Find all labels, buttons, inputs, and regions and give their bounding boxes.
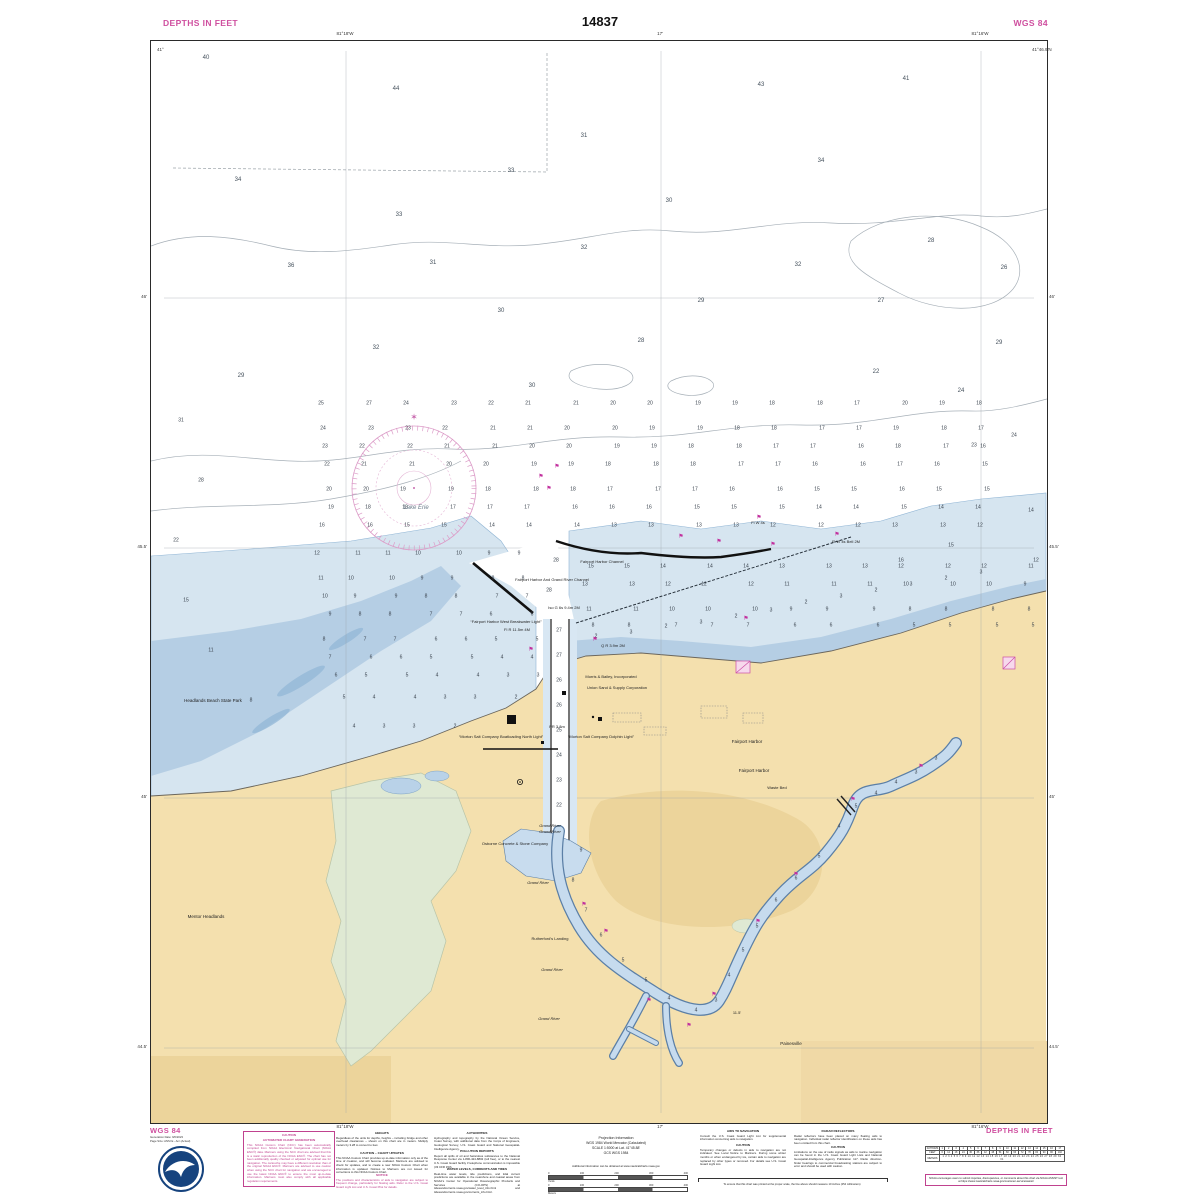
depth-sounding: 10 [950,583,956,588]
depth-sounding: 14 [743,565,749,570]
depth-sounding: 17 [810,445,816,450]
depth-sounding: 11 [318,577,323,582]
map-label: Morris & Bailey, Incorporated [585,675,636,679]
graticule-label: 41°46.9'N [1032,47,1052,52]
depth-sounding: 27 [878,298,885,304]
depth-sounding: 3 [507,674,510,679]
assist-note: NOAA encourages users to submit inquirie… [925,1174,1067,1186]
buoy-icon: ⚑ [686,1023,691,1029]
depth-sounding: 17 [487,506,493,511]
depth-sounding: 23 [451,402,457,407]
depth-sounding: 16 [898,559,904,564]
depth-sounding: 3 [700,621,703,626]
depth-sounding: 3 [840,595,843,600]
buoy-icon: ⚑ [850,797,855,803]
depth-sounding: 20 [363,488,369,493]
depth-sounding: 11 [355,552,360,557]
depth-sounding: 6 [775,899,778,904]
depth-sounding: 24 [320,427,326,432]
depth-sounding: 8 [250,699,253,704]
depth-sounding: 6 [465,638,468,643]
depth-sounding: 23 [971,444,977,449]
buoy-icon: ⚑ [756,515,761,521]
buoy-icon: ⚑ [603,929,608,935]
map-label: Grand River [527,881,549,885]
depth-sounding: 12 [818,524,824,529]
depth-sounding: 8 [1028,608,1031,613]
wgs84-top: WGS 84 [1013,18,1048,28]
depth-sounding: 8 [945,608,948,613]
depth-sounding: 6 [490,613,493,618]
depth-sounding: 12 [945,565,951,570]
graticule-label: 44.5' [137,1044,147,1049]
depth-sounding: 20 [610,402,616,407]
depth-sounding: 2 [945,577,948,582]
depth-sounding: 31 [430,260,437,266]
projection-info: Projection InformationWGS 1984 World Mer… [540,1136,692,1156]
buoy-icon: ⚑ [528,647,533,653]
depth-sounding: 10 [389,577,395,582]
map-label: Grand River [539,830,561,834]
map-label: Q R 3.9m 2M [601,644,625,648]
depth-sounding: 44 [393,86,400,92]
depth-sounding: 19 [568,463,574,468]
depth-sounding: 17 [943,445,949,450]
map-label: Grand River [538,1017,560,1021]
depth-sounding: 18 [941,427,947,432]
map-label: Waste Bed [767,786,786,790]
depth-sounding: 20 [612,427,618,432]
depth-sounding: 15 [694,506,700,511]
map-label: Fairport Harbor And Grand River Channel [515,578,589,582]
depth-sounding: 11 [208,649,213,654]
graticule-label: 45' [141,794,147,799]
depth-sounding: 24 [403,402,409,407]
depth-sounding: 7 [675,624,678,629]
depth-sounding: 13 [940,524,946,529]
depth-sounding: 16 [812,463,818,468]
map-label: Painesville [780,1042,802,1047]
depth-sounding: 11 [867,583,872,588]
depth-sounding: 18 [976,402,982,407]
depth-sounding: 40 [203,55,210,61]
depth-sounding: 19 [732,402,738,407]
depth-sounding: 21 [490,427,496,432]
map-label: Lake Erie [403,505,428,511]
depth-sounding: 13 [892,524,898,529]
depth-sounding: 6 [400,656,403,661]
depth-sounding: 3 [537,674,540,679]
depth-sounding: 2 [454,725,457,730]
depth-sounding: 20 [446,463,452,468]
depth-sounding: 12 [898,565,904,570]
note-notice: NOTICEThe positions and characteristics … [336,1174,428,1190]
depth-sounding: 4 [353,725,356,730]
depth-sounding: 14 [816,506,822,511]
depth-sounding: 32 [795,262,802,268]
graticule-label: 46' [1049,294,1055,299]
depth-sounding: 4 [895,781,898,786]
depth-sounding: 20 [326,488,332,493]
map-label: Fl W 4s [751,521,765,525]
depth-sounding: 4 [875,792,878,797]
wgs84-bottom: WGS 84 [150,1126,181,1135]
depth-sounding: 11 [586,608,591,613]
depth-sounding: 11 [784,583,789,588]
depth-sounding: 15 [731,506,737,511]
depth-sounding: 12 [1033,559,1039,564]
depth-sounding: 29 [698,298,705,304]
depth-sounding: 27 [366,402,372,407]
map-label: Fairport Harbor [739,769,770,774]
buoy-icon: ⚑ [711,992,716,998]
map-label: Grand River [541,968,563,972]
map-label: Fl W 4s Bell 2M [832,540,860,544]
depth-sounding: 3 [770,609,773,614]
depth-sounding: 5 [343,696,346,701]
note-water-levels: WATER LEVELS, CURRENTS AND TIDESReal-tim… [434,1168,520,1195]
map-label: “Morton Salt Company Dolphin Light” [568,735,634,739]
depth-sounding: 15 [588,565,594,570]
soundings-and-labels-layer: 2527242322212120201919181817201918242323… [151,41,1047,1123]
depth-sounding: 16 [609,506,615,511]
depth-sounding: 13 [611,524,617,529]
depth-sounding: 16 [572,506,578,511]
depth-sounding: 6 [435,638,438,643]
map-label: Fairport Harbor [732,740,763,745]
graticule-label: 17' [657,31,663,36]
map-label: Grand River [539,824,561,828]
depth-sounding: 10 [348,577,354,582]
depth-sounding: 19 [448,488,454,493]
depth-sounding: 18 [365,506,371,511]
depth-sounding: 5 [949,624,952,629]
depth-sounding: 27 [556,629,562,634]
depth-sounding: 6 [531,613,534,618]
depth-sounding: 9 [873,608,876,613]
depth-sounding: 13 [629,583,635,588]
depth-sounding: 17 [773,445,779,450]
buoy-icon: ⚑ [770,542,775,548]
map-label: Union Sand & Supply Corporation [587,686,647,690]
depth-sounding: 5 [430,656,433,661]
depth-sounding: 9 [826,608,829,613]
depth-sounding: 9 [421,577,424,582]
depth-sounding: 8 [572,879,575,884]
depth-sounding: 13 [696,524,702,529]
depth-sounding: 9 [518,552,521,557]
depth-sounding: 3 [980,571,983,576]
buoy-icon: ⚑ [646,998,651,1004]
depth-sounding: 12 [977,524,983,529]
depth-sounding: 15 [624,565,630,570]
depth-sounding: 4 [668,997,671,1002]
depth-sounding: 17 [819,427,825,432]
depth-sounding: 2 [735,615,738,620]
depth-sounding: 16 [934,463,940,468]
depth-sounding: 27 [556,654,562,659]
depth-sounding: 34 [235,177,242,183]
map-label: Fl R 11.5m 4M [504,628,530,632]
depth-sounding: 16 [367,524,373,529]
depth-sounding: 20 [566,445,572,450]
depth-sounding: 6 [830,624,833,629]
depth-sounding: 15 [851,488,857,493]
depth-sounding: 4 [728,974,731,979]
depth-sounding: 7 [460,613,463,618]
depth-sounding: 15 [183,599,189,604]
depth-sounding: 18 [485,488,491,493]
depth-sounding: 3 [935,757,938,762]
scale-bar: 0100200300400Yards [548,1172,688,1183]
depth-sounding: 5 [365,674,368,679]
map-label: PR 3.8m [549,725,565,729]
depth-sounding: 3 [413,725,416,730]
depth-sounding: 14 [574,524,580,529]
map-label: “Fairport Harbor West Breakwater Light” [470,620,541,624]
depth-sounding: 15 [948,544,954,549]
depth-sounding: 10 [903,583,909,588]
depth-sounding: 28 [928,238,935,244]
unit-conversion-table: FATHOMS1234567891011121314151617FEET6121… [925,1146,1065,1162]
depth-sounding: 18 [688,445,694,450]
depth-sounding: 21 [525,402,531,407]
depth-sounding: 16 [860,463,866,468]
depth-sounding: 10 [986,583,992,588]
depth-sounding: 2 [515,696,518,701]
depth-sounding: 14 [660,565,666,570]
depth-sounding: 22 [407,445,413,450]
depth-sounding: 18 [734,427,740,432]
depth-sounding: 10 [669,608,675,613]
depth-sounding: 8 [425,595,428,600]
depth-sounding: 19 [328,506,334,511]
depth-sounding: 14 [853,506,859,511]
depth-sounding: 31 [581,133,588,139]
map-label: 11.5' [733,1011,741,1015]
depth-sounding: 13 [779,565,785,570]
graticule-label: 81°18'W [337,1124,354,1129]
depth-sounding: 3 [383,725,386,730]
depth-sounding: 23 [405,427,411,432]
depth-sounding: 26 [556,679,562,684]
map-label: Osborne Concrete & Stone Company [482,842,548,846]
scale-check-text: To ensure that this chart was printed at… [698,1183,886,1186]
depth-sounding: 2 [875,589,878,594]
depth-sounding: 20 [902,402,908,407]
depth-sounding: 19 [695,402,701,407]
depth-sounding: 4 [501,656,504,661]
depth-sounding: 4 [477,674,480,679]
depth-sounding: 33 [508,168,515,174]
depth-sounding: 23 [556,779,562,784]
depth-sounding: 17 [897,463,903,468]
depth-sounding: 41 [903,76,910,82]
depth-sounding: 8 [323,638,326,643]
depth-sounding: 30 [529,383,536,389]
depth-sounding: 3 [915,771,918,776]
depth-sounding: 3 [910,583,913,588]
depth-sounding: 8 [592,624,595,629]
buoy-icon: ⚑ [546,486,551,492]
depth-sounding: 19 [893,427,899,432]
depth-sounding: 22 [173,539,179,544]
depth-sounding: 17 [856,427,862,432]
depth-sounding: 13 [733,524,739,529]
depth-sounding: 18 [817,402,823,407]
depth-sounding: 10 [322,595,328,600]
depth-sounding: 18 [769,402,775,407]
depth-sounding: 6 [794,624,797,629]
depth-sounding: 9 [580,849,583,854]
scale-check-line [698,1178,888,1182]
depth-sounding: 14 [938,506,944,511]
depth-sounding: 12 [701,583,707,588]
depth-sounding: 43 [758,82,765,88]
graticule-label: 41° [157,47,164,52]
depth-sounding: 9 [790,608,793,613]
depth-sounding: 7 [364,638,367,643]
buoy-icon: ⚑ [554,464,559,470]
buoy-icon: ⚑ [581,902,586,908]
depth-sounding: 17 [607,488,613,493]
buoy-icon: ⚑ [592,637,597,643]
depth-sounding: 29 [238,373,245,379]
more-info-link: Additional information can be obtained a… [528,1164,704,1168]
depth-sounding: 23 [368,427,374,432]
depth-sounding: 9 [488,552,491,557]
depth-sounding: 18 [570,488,576,493]
depth-sounding: 21 [444,445,450,450]
depth-sounding: 21 [573,402,579,407]
depth-sounding: 8 [359,613,362,618]
depth-sounding: 18 [771,427,777,432]
depth-sounding: 20 [647,402,653,407]
depth-sounding: 36 [288,263,295,269]
depth-sounding: 13 [862,565,868,570]
depth-sounding: 5 [471,656,474,661]
graticule-label: 81°16'W [972,1124,989,1129]
depth-sounding: 26 [1001,265,1008,271]
depth-sounding: 4 [531,656,534,661]
depth-sounding: 12 [314,552,320,557]
depth-sounding: 5 [855,805,858,810]
depth-sounding: 9 [354,595,357,600]
depths-in-feet-bottom: DEPTHS IN FEET [986,1126,1053,1135]
depth-sounding: 6 [600,934,603,939]
depth-sounding: 14 [489,524,495,529]
depth-sounding: 15 [814,488,820,493]
depth-sounding: 14 [526,524,532,529]
depth-sounding: 13 [648,524,654,529]
depth-sounding: 28 [553,559,559,564]
conversion-table: FATHOMS1234567891011121314151617FEET6121… [925,1146,1065,1162]
depth-sounding: 20 [483,463,489,468]
depth-sounding: 32 [581,245,588,251]
depth-sounding: 2 [665,625,668,630]
depth-sounding: 18 [533,488,539,493]
depth-sounding: 22 [442,427,448,432]
depth-sounding: 19 [697,427,703,432]
buoy-icon: ⚑ [918,764,923,770]
depth-sounding: 19 [649,427,655,432]
map-label: “Morton Salt Company Boatloading North L… [459,735,543,739]
generation-info: Generation Date: 9/6/2023 Page Size: ANS… [150,1136,190,1143]
depth-sounding: 16 [980,445,986,450]
depth-sounding: 5 [996,624,999,629]
depth-sounding: 24 [1011,434,1017,439]
depth-sounding: 20 [529,445,535,450]
depth-sounding: 15 [404,524,410,529]
depth-sounding: 7 [747,624,750,629]
depth-sounding: 21 [492,445,498,450]
buoy-icon: ⚑ [716,539,721,545]
noaa-logo: NOAA [158,1146,204,1192]
depth-sounding: 16 [858,445,864,450]
note-heights: HEIGHTSRegardless of the units for depth… [336,1132,428,1148]
depth-sounding: 3 [630,631,633,636]
depth-sounding: 16 [899,488,905,493]
chart-margin-notes: WGS 84 Generation Date: 9/6/2023 Page Si… [0,1122,1200,1200]
depth-sounding: 9 [1024,583,1027,588]
depth-sounding: 29 [996,340,1003,346]
depth-sounding: 14 [1028,509,1034,514]
depth-sounding: 19 [939,402,945,407]
depth-sounding: 8 [628,624,631,629]
depth-sounding: 21 [409,463,415,468]
graticule-label: 81°16'W [972,31,989,36]
depth-sounding: 9 [329,613,332,618]
depth-sounding: 10 [705,608,711,613]
depth-sounding: 15 [441,524,447,529]
depth-sounding: 21 [527,427,533,432]
depth-sounding: 7 [711,624,714,629]
depth-sounding: 4 [436,674,439,679]
depth-sounding: 10 [415,552,421,557]
depth-sounding: 15 [779,506,785,511]
depth-sounding: 4 [838,825,841,830]
graticule-label: 45.5' [137,544,147,549]
depth-sounding: 8 [492,577,495,582]
note-caution-temp: CAUTIONTemporary changes or defects in a… [700,1144,786,1167]
graticule-label: 45' [1049,794,1055,799]
depth-sounding: 17 [450,506,456,511]
depth-sounding: 17 [854,402,860,407]
depth-sounding: 14 [707,565,713,570]
depth-sounding: 22 [873,369,880,375]
depth-sounding: 16 [729,488,735,493]
depth-sounding: 22 [488,402,494,407]
depth-sounding: 22 [556,804,562,809]
map-label: Fairport Harbor Channel [580,560,623,564]
depth-sounding: 19 [531,463,537,468]
svg-text:NOAA: NOAA [175,1154,187,1159]
depth-sounding: 18 [736,445,742,450]
depth-sounding: 7 [585,909,588,914]
graticule-label: 46' [141,294,147,299]
depth-sounding: 5 [622,959,625,964]
depth-sounding: 8 [909,608,912,613]
depth-sounding: 8 [455,595,458,600]
depth-sounding: 9 [395,595,398,600]
note-radar: RADAR REFLECTORSRadar reflectors have be… [794,1130,882,1146]
depth-sounding: 14 [975,506,981,511]
depth-sounding: 24 [556,754,562,759]
depth-sounding: 3 [715,999,718,1004]
depth-sounding: 12 [770,524,776,529]
depth-sounding: 30 [666,198,673,204]
depth-sounding: 30 [498,308,505,314]
